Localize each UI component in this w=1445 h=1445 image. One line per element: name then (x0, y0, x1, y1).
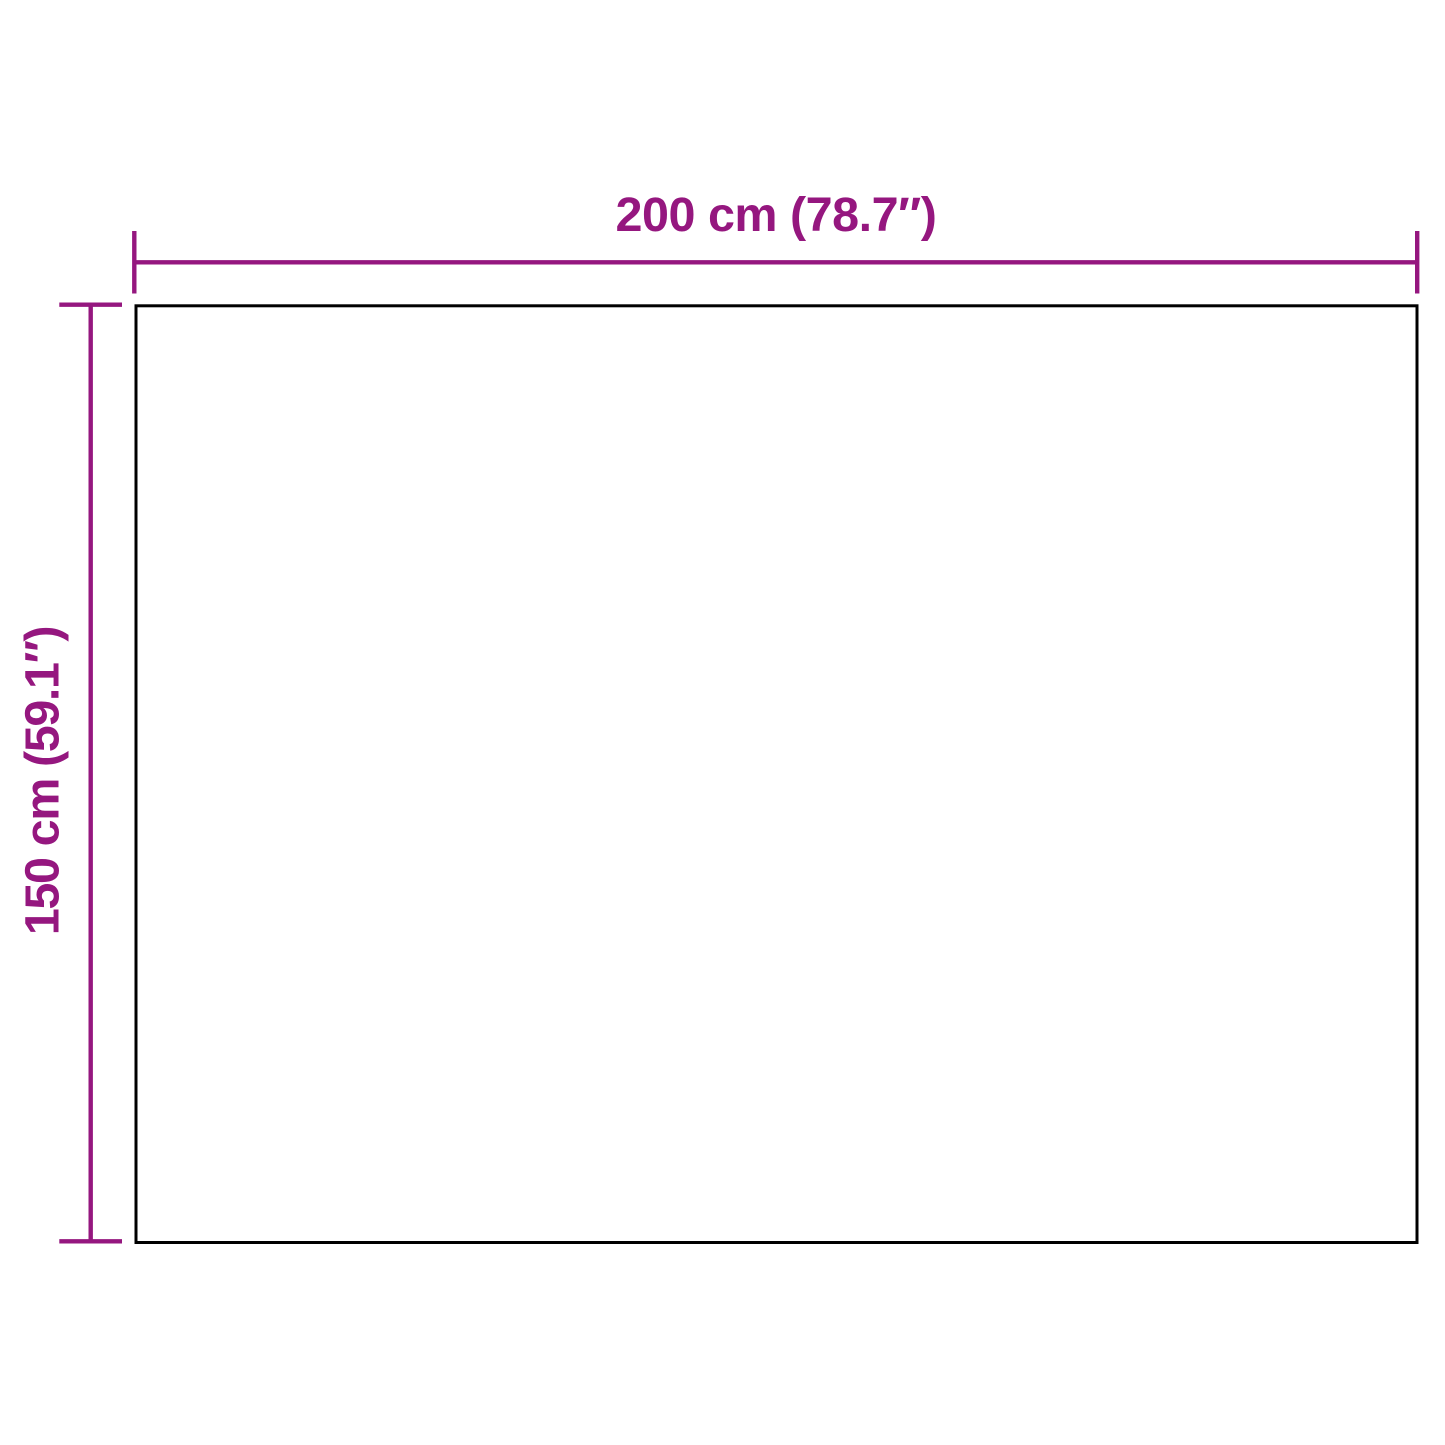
svg-text:200 cm (78.7″): 200 cm (78.7″) (616, 188, 937, 242)
svg-text:150 cm (59.1″): 150 cm (59.1″) (16, 627, 70, 935)
